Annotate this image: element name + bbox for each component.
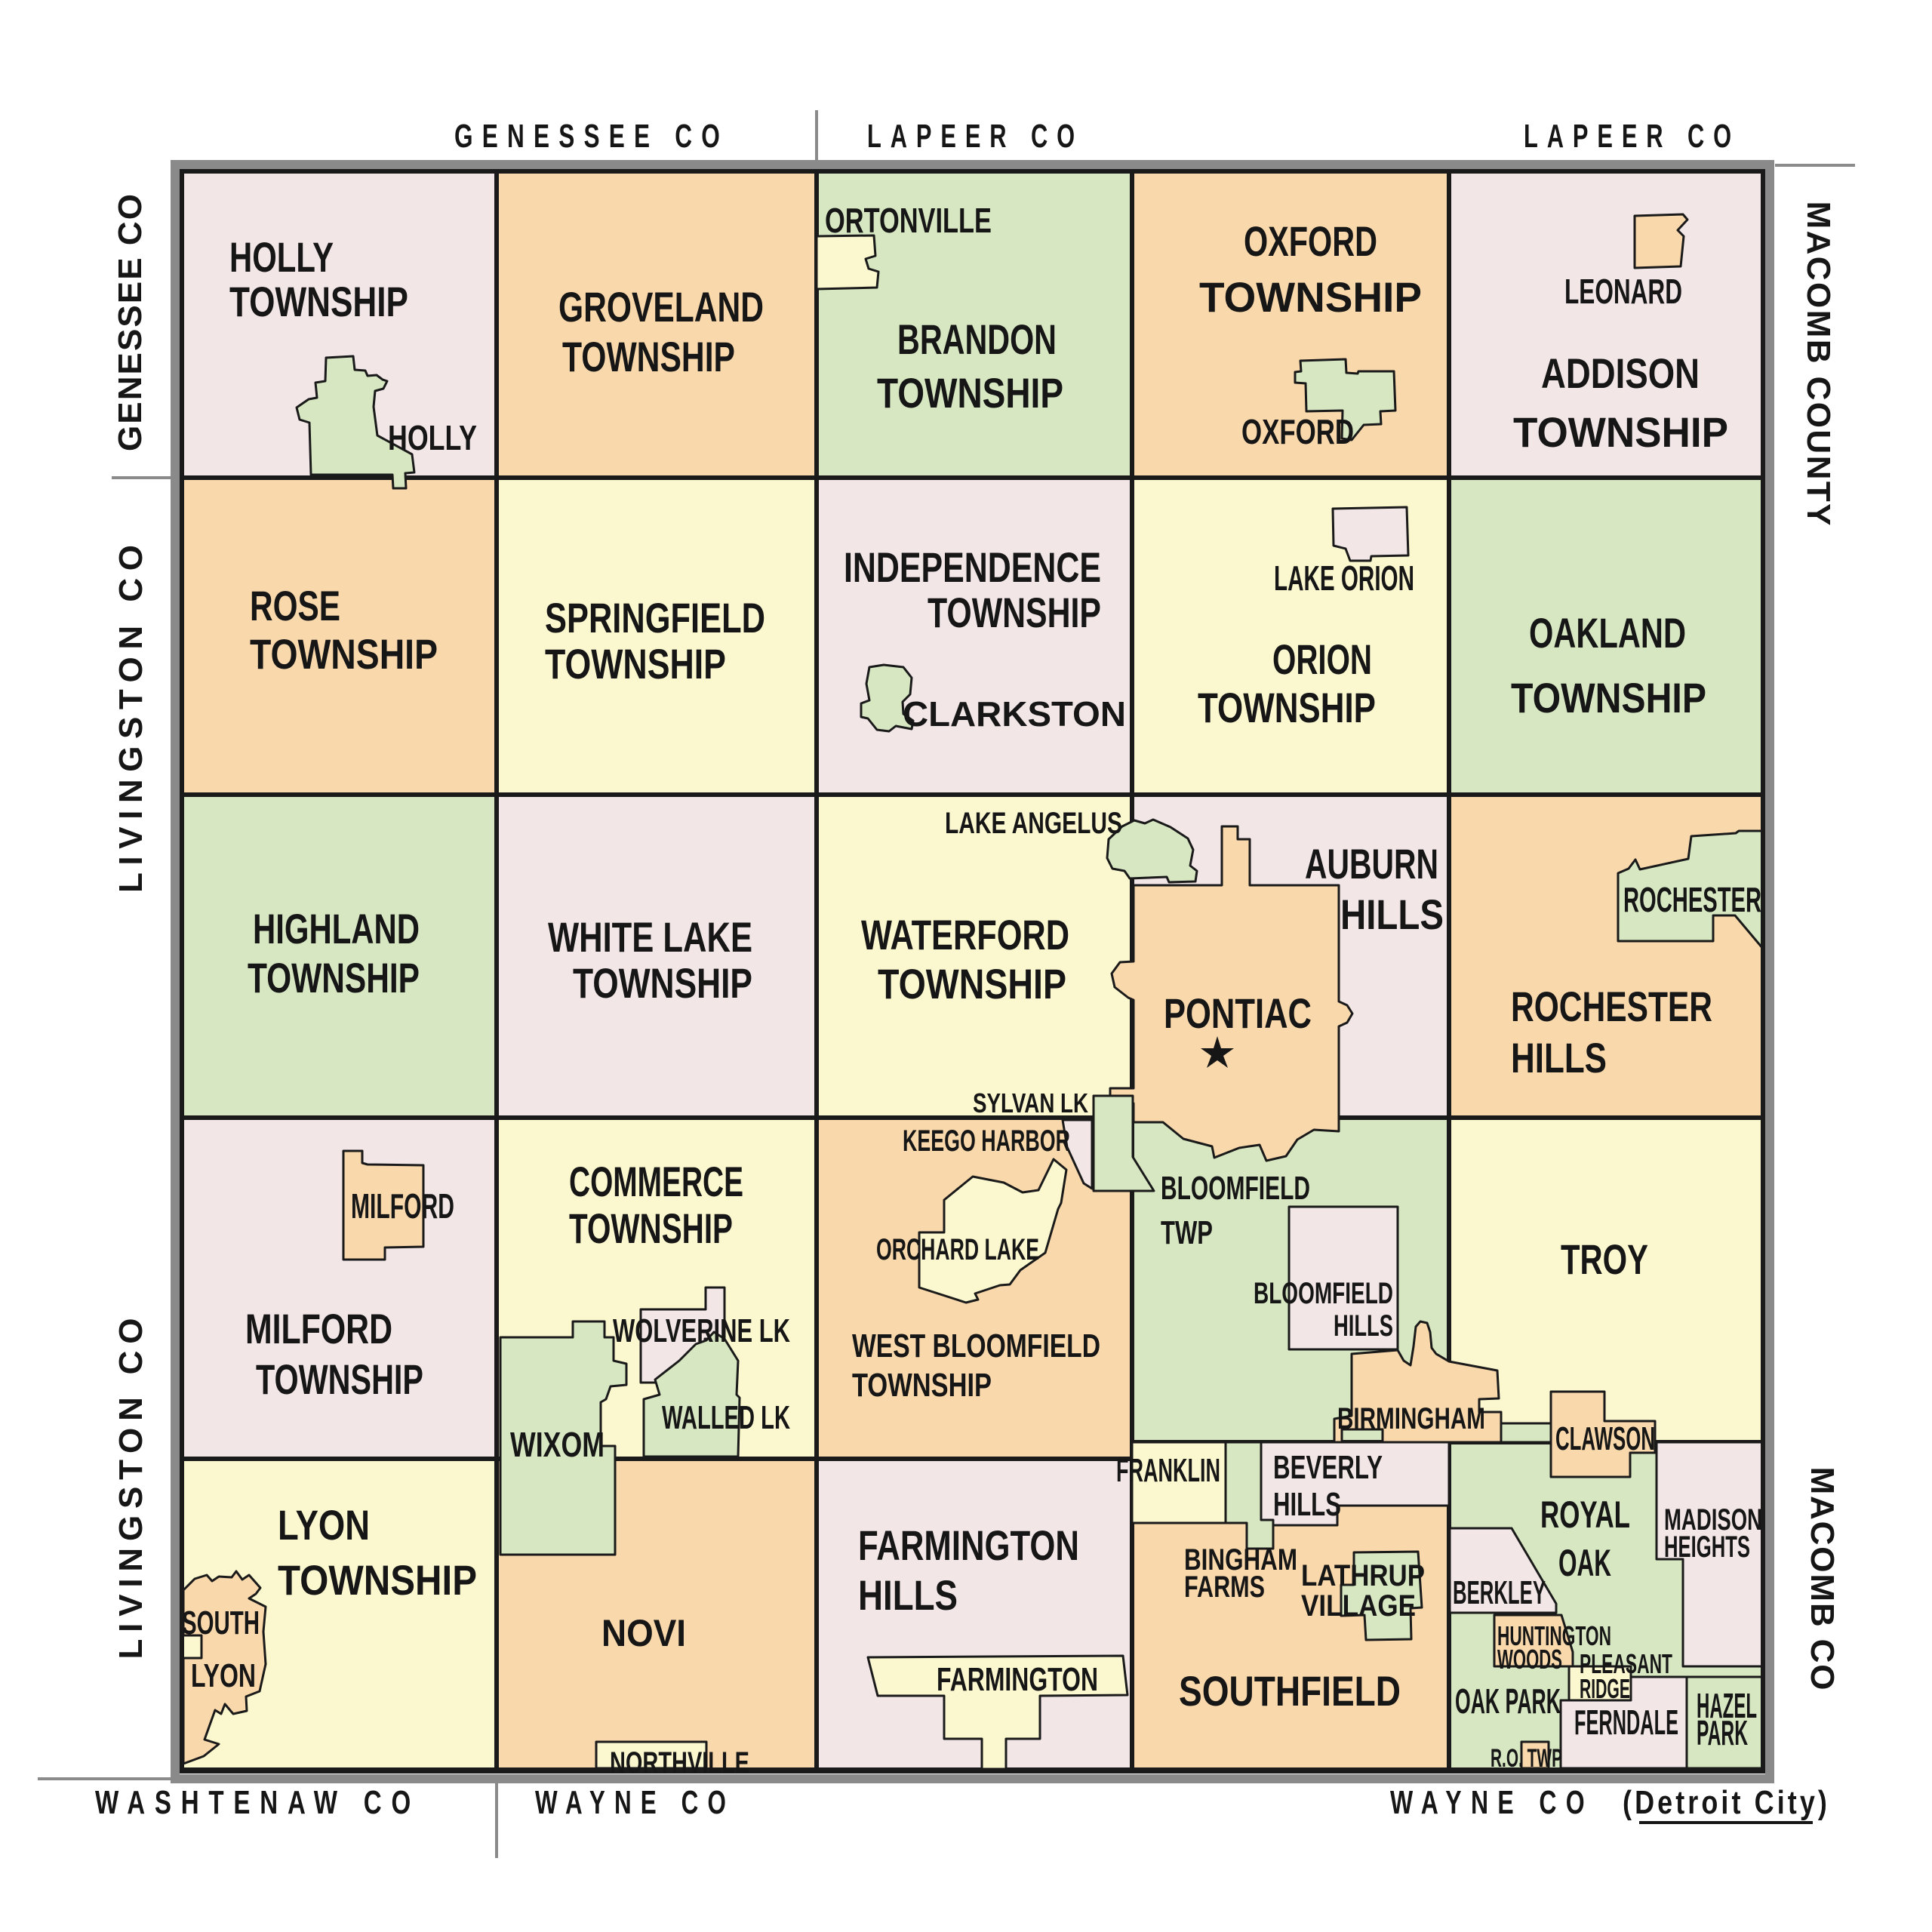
svg-text:ROCHESTER: ROCHESTER [1511,983,1712,1030]
svg-text:LAKE ANGELUS: LAKE ANGELUS [945,807,1122,840]
svg-text:LAPEER CO: LAPEER CO [867,118,1084,155]
svg-text:TOWNSHIP: TOWNSHIP [1511,674,1706,721]
svg-text:HOLLY: HOLLY [388,418,477,457]
svg-text:TOWNSHIP: TOWNSHIP [229,278,408,325]
svg-text:FRANKLIN: FRANKLIN [1116,1452,1220,1489]
svg-text:R.O. TWP: R.O. TWP [1491,1744,1562,1773]
svg-text:WIXOM: WIXOM [510,1425,605,1464]
svg-text:SOUTHFIELD: SOUTHFIELD [1179,1667,1401,1715]
svg-text:HIGHLAND: HIGHLAND [253,905,420,952]
svg-text:TOWNSHIP: TOWNSHIP [569,1204,733,1252]
svg-text:OXFORD: OXFORD [1244,217,1377,265]
svg-text:BIRMINGHAM: BIRMINGHAM [1337,1402,1485,1435]
svg-text:TOWNSHIP: TOWNSHIP [852,1367,992,1404]
svg-text:INDEPENDENCE: INDEPENDENCE [844,543,1101,591]
svg-text:GENESSEE CO: GENESSEE CO [112,181,149,451]
svg-text:LAKE ORION: LAKE ORION [1274,558,1414,598]
svg-text:OXFORD: OXFORD [1241,412,1354,451]
svg-text:LIVINGSTON CO: LIVINGSTON CO [112,532,149,893]
svg-text:BLOOMFIELD: BLOOMFIELD [1254,1277,1393,1310]
svg-text:TOWNSHIP: TOWNSHIP [573,959,752,1007]
svg-text:BLOOMFIELD: BLOOMFIELD [1161,1170,1310,1207]
svg-text:WOODS: WOODS [1497,1644,1562,1675]
svg-text:TOWNSHIP: TOWNSHIP [877,369,1063,417]
svg-text:ADDISON: ADDISON [1541,349,1700,397]
svg-text:GENESSEE CO: GENESSEE CO [454,118,729,155]
svg-text:TOWNSHIP: TOWNSHIP [1199,273,1422,321]
svg-text:HOLLY: HOLLY [229,233,334,281]
svg-text:ORTONVILLE: ORTONVILLE [825,201,992,240]
svg-text:LEONARD: LEONARD [1564,272,1682,311]
svg-text:WOLVERINE LK: WOLVERINE LK [613,1312,790,1349]
svg-text:COMMERCE: COMMERCE [569,1158,743,1205]
svg-text:SYLVAN LK: SYLVAN LK [973,1088,1088,1118]
svg-text:RIDGE: RIDGE [1580,1673,1630,1704]
svg-text:FARMS: FARMS [1184,1571,1265,1604]
svg-text:SOUTH: SOUTH [182,1604,260,1641]
svg-text:ROSE: ROSE [250,582,340,629]
svg-text:GROVELAND: GROVELAND [558,283,764,331]
svg-text:HILLS: HILLS [858,1571,958,1619]
svg-text:OAK: OAK [1558,1542,1611,1584]
svg-text:FARMINGTON: FARMINGTON [858,1521,1079,1569]
svg-text:(Detroit City): (Detroit City) [1623,1784,1830,1821]
svg-text:ORION: ORION [1272,635,1372,683]
svg-text:LATHRUP: LATHRUP [1301,1559,1425,1592]
svg-text:TROY: TROY [1561,1235,1648,1283]
svg-text:LAPEER CO: LAPEER CO [1524,118,1740,155]
svg-text:TOWNSHIP: TOWNSHIP [545,640,726,688]
svg-text:TOWNSHIP: TOWNSHIP [562,333,735,380]
svg-text:CLARKSTON: CLARKSTON [903,694,1126,734]
svg-text:WALLED LK: WALLED LK [662,1399,790,1436]
svg-text:TOWNSHIP: TOWNSHIP [250,630,438,678]
svg-text:MACOMB CO: MACOMB CO [1804,1467,1841,1703]
svg-text:MILFORD: MILFORD [351,1186,454,1226]
svg-text:NOVI: NOVI [601,1612,686,1654]
svg-text:TOWNSHIP: TOWNSHIP [878,960,1066,1008]
svg-text:TOWNSHIP: TOWNSHIP [1198,684,1376,731]
svg-text:MACOMB COUNTY: MACOMB COUNTY [1800,202,1837,539]
svg-text:TOWNSHIP: TOWNSHIP [278,1556,477,1604]
svg-text:WEST BLOOMFIELD: WEST BLOOMFIELD [852,1327,1100,1364]
svg-text:LIVINGSTON CO: LIVINGSTON CO [112,1306,149,1660]
svg-text:WASHTENAW CO: WASHTENAW CO [95,1784,420,1821]
svg-text:LYON: LYON [278,1501,370,1549]
svg-text:FARMINGTON: FARMINGTON [937,1661,1098,1698]
svg-text:FERNDALE: FERNDALE [1574,1703,1678,1742]
svg-text:ROCHESTER: ROCHESTER [1623,880,1761,919]
svg-text:TWP: TWP [1161,1214,1213,1251]
svg-text:TOWNSHIP: TOWNSHIP [1513,408,1728,456]
svg-text:WAYNE CO: WAYNE CO [1390,1784,1594,1821]
svg-text:ORCHARD LAKE: ORCHARD LAKE [876,1233,1039,1266]
svg-text:OAK PARK: OAK PARK [1455,1681,1561,1721]
svg-text:NORTHVILLE: NORTHVILLE [610,1746,749,1780]
svg-text:HEIGHTS: HEIGHTS [1664,1531,1750,1564]
svg-text:LYON: LYON [191,1657,256,1694]
svg-text:BERKLEY: BERKLEY [1453,1574,1546,1611]
svg-text:MILFORD: MILFORD [245,1305,392,1352]
svg-text:TOWNSHIP: TOWNSHIP [256,1355,423,1403]
svg-text:PARK: PARK [1697,1713,1748,1752]
svg-text:WHITE LAKE: WHITE LAKE [548,913,752,961]
svg-text:BEVERLY: BEVERLY [1273,1449,1383,1486]
svg-text:KEEGO HARBOR: KEEGO HARBOR [903,1124,1070,1158]
svg-text:HILLS: HILLS [1334,1309,1393,1343]
svg-text:ROYAL: ROYAL [1540,1494,1630,1536]
svg-text:HILLS: HILLS [1511,1034,1607,1081]
svg-text:VILLAGE: VILLAGE [1301,1589,1416,1623]
svg-text:WATERFORD: WATERFORD [861,911,1069,958]
svg-text:AUBURN: AUBURN [1305,840,1438,888]
svg-text:WAYNE CO: WAYNE CO [535,1784,735,1821]
svg-text:SPRINGFIELD: SPRINGFIELD [545,594,765,641]
svg-text:BRANDON: BRANDON [897,315,1057,363]
svg-text:TOWNSHIP: TOWNSHIP [928,589,1101,636]
svg-text:PONTIAC: PONTIAC [1164,989,1312,1037]
svg-text:HILLS: HILLS [1340,891,1444,938]
svg-text:HILLS: HILLS [1273,1486,1341,1523]
svg-text:CLAWSON: CLAWSON [1555,1420,1655,1457]
svg-text:TOWNSHIP: TOWNSHIP [248,954,420,1001]
svg-text:OAKLAND: OAKLAND [1529,609,1686,657]
